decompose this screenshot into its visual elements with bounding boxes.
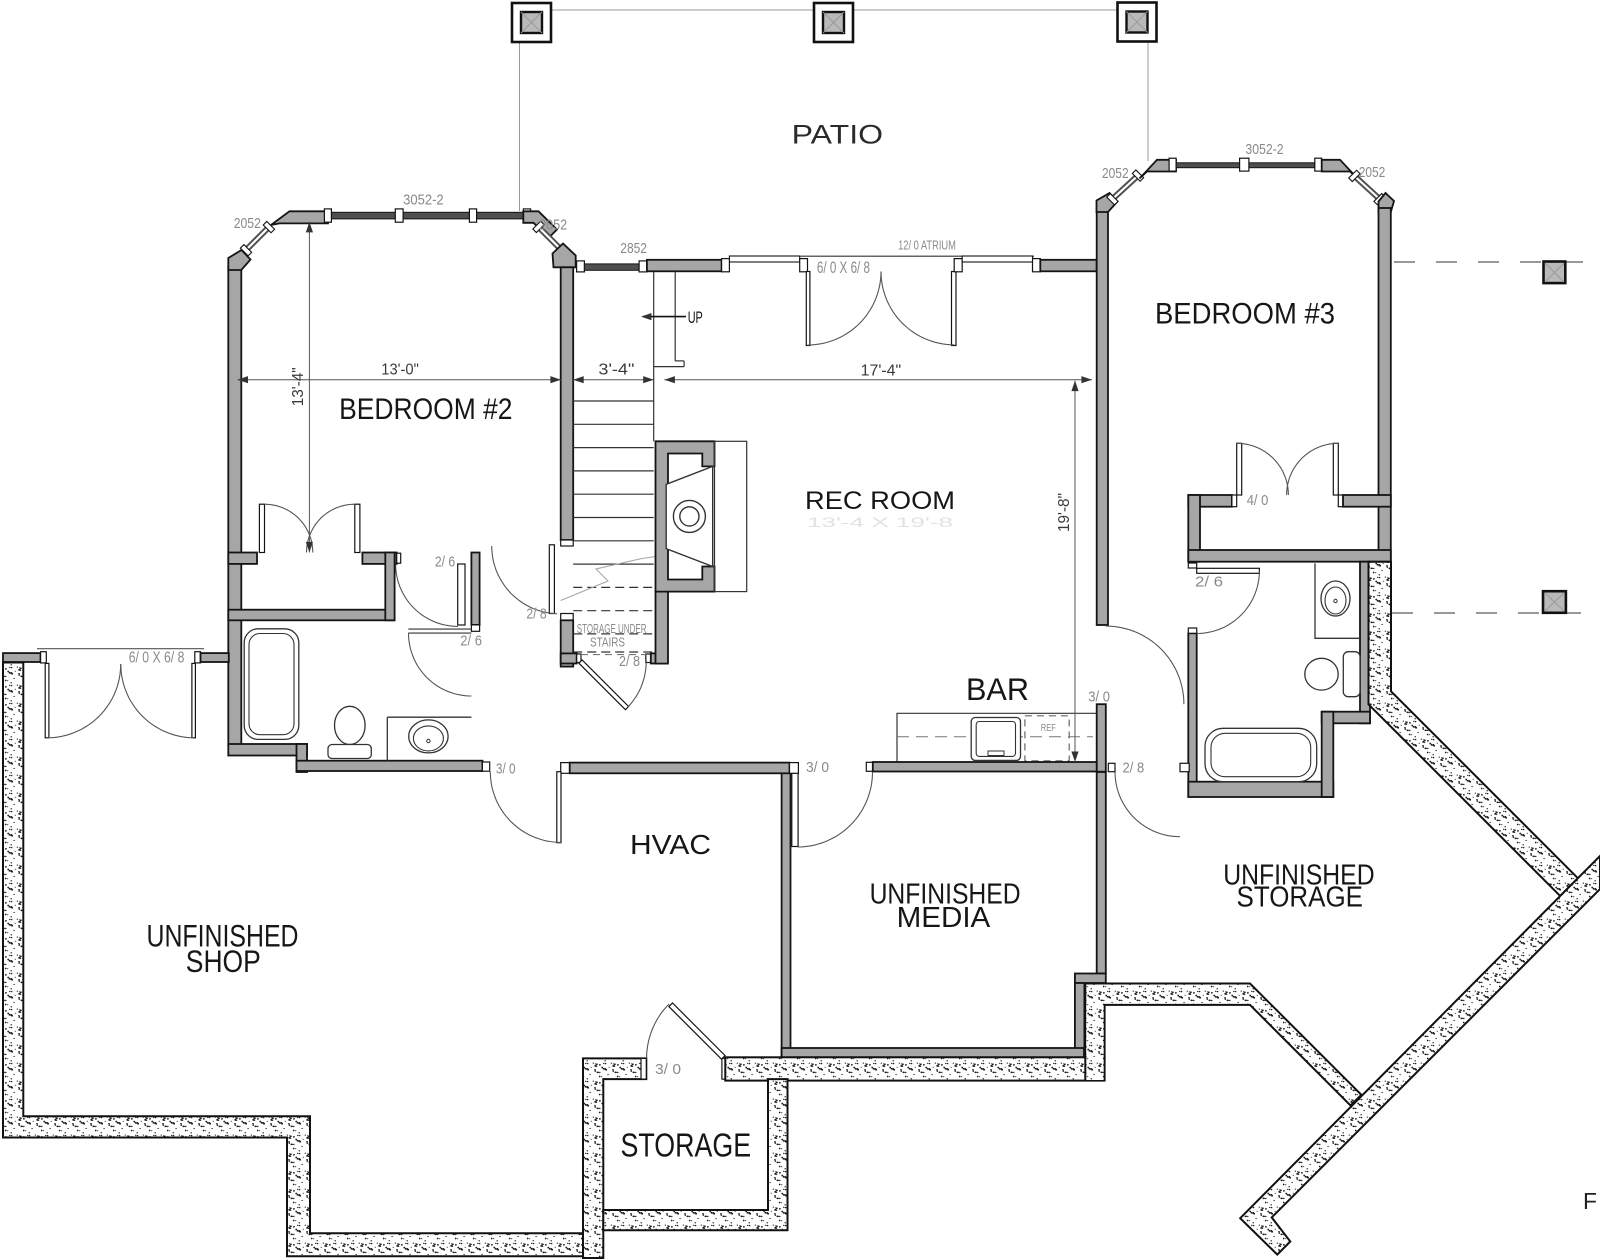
svg-text:17'-4": 17'-4" (861, 363, 902, 380)
svg-text:6/ 0 X 6/ 8: 6/ 0 X 6/ 8 (817, 258, 870, 277)
svg-text:3052-2: 3052-2 (403, 192, 444, 209)
svg-text:4/ 0: 4/ 0 (1247, 492, 1269, 509)
svg-text:REC ROOM: REC ROOM (805, 488, 955, 515)
svg-text:3/ 0: 3/ 0 (496, 761, 516, 778)
svg-text:12/ 0 ATRIUM: 12/ 0 ATRIUM (898, 237, 956, 252)
svg-text:STORAGE: STORAGE (1237, 882, 1364, 914)
svg-text:2/ 6: 2/ 6 (1195, 574, 1223, 591)
svg-text:STAIRS: STAIRS (590, 635, 625, 650)
svg-text:BAR: BAR (966, 671, 1029, 707)
svg-text:2/ 8: 2/ 8 (1123, 760, 1145, 777)
svg-text:UP: UP (688, 308, 703, 327)
svg-text:MEDIA: MEDIA (897, 902, 991, 934)
svg-text:2052: 2052 (539, 217, 567, 234)
svg-text:13'-4": 13'-4" (290, 367, 307, 406)
svg-text:3/ 0: 3/ 0 (1088, 689, 1110, 706)
svg-text:HVAC: HVAC (630, 829, 711, 860)
svg-text:2/ 6: 2/ 6 (435, 553, 455, 570)
svg-text:3'-4": 3'-4" (598, 362, 634, 379)
svg-text:2852: 2852 (620, 240, 647, 257)
svg-text:SHOP: SHOP (186, 943, 261, 979)
svg-text:13'-4 X 19'-8: 13'-4 X 19'-8 (807, 515, 953, 530)
svg-text:BEDROOM #3: BEDROOM #3 (1155, 297, 1335, 330)
svg-text:PATIO: PATIO (792, 119, 883, 149)
svg-text:BEDROOM #2: BEDROOM #2 (339, 393, 512, 426)
svg-text:6/ 0 X 6/ 8: 6/ 0 X 6/ 8 (129, 650, 185, 667)
svg-text:2/ 8: 2/ 8 (619, 653, 640, 670)
svg-text:REF: REF (1041, 723, 1056, 734)
svg-text:2052: 2052 (234, 215, 261, 232)
svg-text:F: F (1583, 1188, 1597, 1214)
svg-text:STORAGE: STORAGE (621, 1126, 752, 1163)
svg-text:13'-0": 13'-0" (381, 362, 419, 379)
svg-text:2/ 8: 2/ 8 (526, 606, 546, 623)
svg-text:19'-8": 19'-8" (1056, 493, 1073, 532)
svg-text:2052: 2052 (1102, 165, 1129, 182)
svg-text:3052-2: 3052-2 (1245, 141, 1283, 158)
svg-text:2/ 6: 2/ 6 (460, 632, 482, 649)
svg-text:3/ 0: 3/ 0 (655, 1061, 681, 1078)
svg-text:3/ 0: 3/ 0 (806, 759, 829, 776)
svg-text:2052: 2052 (1359, 164, 1386, 181)
